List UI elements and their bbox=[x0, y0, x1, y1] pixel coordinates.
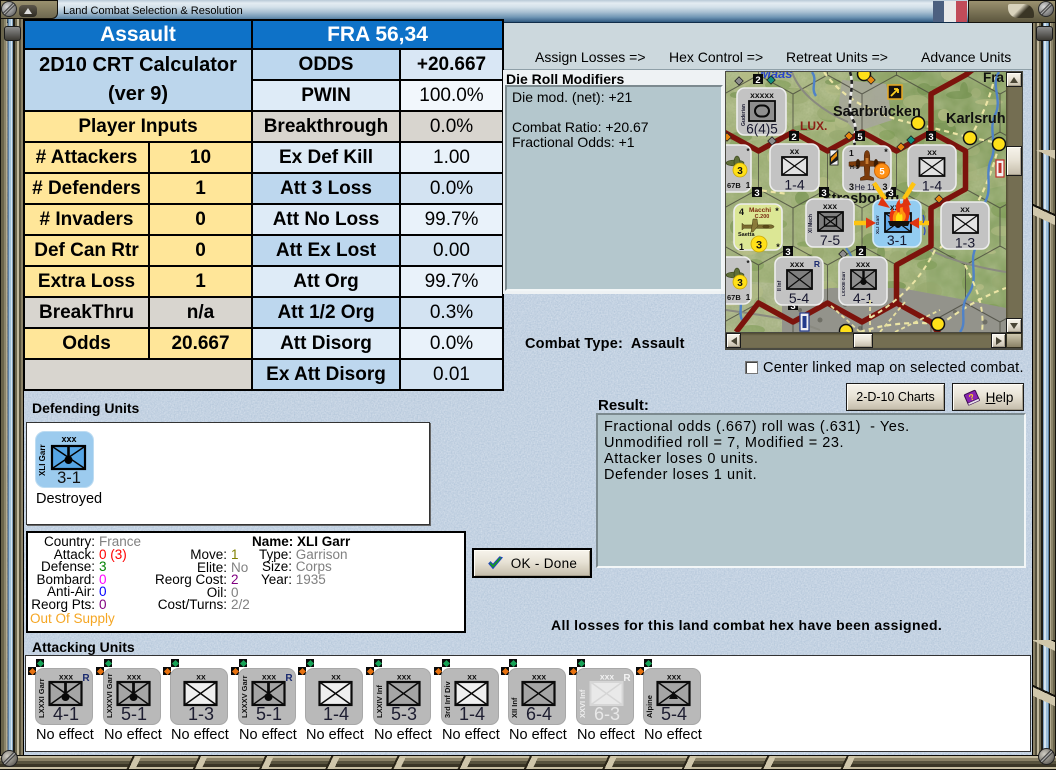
svg-text:67B: 67B bbox=[727, 293, 741, 302]
svg-text:Saetta: Saetta bbox=[738, 232, 755, 238]
svg-text:5-3: 5-3 bbox=[391, 704, 417, 724]
svg-text:2: 2 bbox=[791, 132, 796, 143]
svg-text:1-4: 1-4 bbox=[459, 704, 485, 724]
svg-text:xx: xx bbox=[927, 147, 937, 157]
svg-text:3: 3 bbox=[737, 278, 743, 289]
svg-text:6(4)5: 6(4)5 bbox=[746, 122, 778, 137]
svg-text:Fra: Fra bbox=[983, 72, 1005, 85]
svg-text:xxx: xxx bbox=[532, 672, 546, 682]
svg-text:Maas: Maas bbox=[760, 72, 793, 81]
svg-text:Karlsruhe: Karlsruhe bbox=[946, 111, 1006, 127]
svg-text:1-4: 1-4 bbox=[784, 177, 804, 193]
svg-text:67B: 67B bbox=[727, 181, 741, 190]
svg-text:XLI Garr: XLI Garr bbox=[38, 444, 47, 476]
svg-text:XLI Garr: XLI Garr bbox=[875, 215, 881, 234]
svg-text:2: 2 bbox=[858, 247, 863, 258]
svg-text:*: * bbox=[776, 242, 780, 252]
svg-text:5-4: 5-4 bbox=[661, 704, 687, 724]
svg-text:xx: xx bbox=[960, 204, 970, 214]
svg-text:1: 1 bbox=[739, 242, 744, 252]
svg-text:xxx: xxx bbox=[600, 672, 614, 682]
svg-text:5: 5 bbox=[879, 167, 885, 178]
svg-text:R: R bbox=[285, 673, 293, 684]
svg-text:3: 3 bbox=[754, 188, 759, 199]
svg-text:3: 3 bbox=[785, 247, 790, 258]
svg-text:R: R bbox=[814, 259, 820, 269]
svg-text:Alpine: Alpine bbox=[645, 695, 654, 718]
svg-text:*: * bbox=[775, 206, 779, 216]
svg-text:6-4: 6-4 bbox=[526, 704, 552, 724]
svg-text:LXXXIII Garr: LXXXIII Garr bbox=[841, 271, 846, 296]
svg-text:LXXXV Garr: LXXXV Garr bbox=[240, 675, 249, 718]
svg-text:xxx: xxx bbox=[856, 259, 870, 269]
svg-text:xx: xx bbox=[467, 672, 477, 682]
svg-text:LXXIV Inf: LXXIV Inf bbox=[375, 685, 384, 718]
svg-text:xx: xx bbox=[196, 672, 206, 682]
svg-text:5: 5 bbox=[857, 132, 863, 143]
svg-text:xxx: xxx bbox=[790, 259, 804, 269]
svg-text:3: 3 bbox=[849, 182, 854, 192]
svg-text:2: 2 bbox=[755, 75, 760, 86]
svg-text:xxxxx: xxxxx bbox=[750, 90, 774, 100]
svg-text:3-1: 3-1 bbox=[57, 469, 81, 487]
svg-text:xxx: xxx bbox=[61, 434, 76, 444]
svg-text:XXVI Inf: XXVI Inf bbox=[578, 689, 587, 718]
svg-text:1: 1 bbox=[849, 148, 854, 158]
svg-text:3-1: 3-1 bbox=[887, 232, 907, 248]
svg-text:1-3: 1-3 bbox=[188, 704, 214, 724]
svg-text:6-3: 6-3 bbox=[594, 704, 620, 724]
svg-text:3: 3 bbox=[756, 240, 762, 252]
svg-text:1: 1 bbox=[746, 180, 751, 190]
svg-text:5-1: 5-1 bbox=[256, 704, 282, 724]
svg-text:1-3: 1-3 bbox=[955, 235, 975, 251]
svg-text:3: 3 bbox=[882, 182, 887, 192]
svg-text:xxx: xxx bbox=[397, 672, 411, 682]
svg-text:H-3: H-3 bbox=[850, 165, 859, 171]
svg-text:xxx: xxx bbox=[823, 201, 837, 211]
svg-text:LXXXI Garr: LXXXI Garr bbox=[37, 678, 46, 718]
svg-text:xxx: xxx bbox=[59, 672, 73, 682]
svg-text:5-1: 5-1 bbox=[121, 704, 147, 724]
svg-text:7-5: 7-5 bbox=[820, 232, 840, 248]
svg-text:1: 1 bbox=[746, 292, 751, 302]
svg-text:1-4: 1-4 bbox=[922, 178, 942, 194]
svg-text:3: 3 bbox=[737, 166, 743, 177]
svg-text:xx: xx bbox=[790, 146, 800, 156]
svg-text:5-4: 5-4 bbox=[789, 290, 809, 306]
svg-text:xxx: xxx bbox=[667, 672, 681, 682]
svg-text:II Inf: II Inf bbox=[777, 280, 783, 291]
svg-text:LUX.: LUX. bbox=[800, 119, 827, 133]
svg-text:LXXXVI Garr: LXXXVI Garr bbox=[105, 673, 114, 718]
svg-text:3: 3 bbox=[928, 132, 933, 143]
svg-text:Saarbrücken: Saarbrücken bbox=[833, 104, 921, 120]
svg-text:R: R bbox=[623, 673, 631, 684]
svg-text:4-1: 4-1 bbox=[53, 704, 79, 724]
svg-text:XI Mech: XI Mech bbox=[808, 214, 814, 233]
svg-text:4: 4 bbox=[739, 207, 744, 217]
svg-text:XII Inf: XII Inf bbox=[510, 697, 519, 718]
svg-text:Macchi: Macchi bbox=[749, 207, 771, 214]
svg-text:R: R bbox=[82, 673, 90, 684]
svg-text:3rd Inf Div: 3rd Inf Div bbox=[443, 680, 452, 718]
svg-text:3: 3 bbox=[821, 188, 826, 199]
svg-text:*: * bbox=[884, 147, 888, 157]
svg-text:Guderian: Guderian bbox=[741, 104, 747, 126]
svg-text:xxx: xxx bbox=[127, 672, 141, 682]
svg-text:xxx: xxx bbox=[262, 672, 276, 682]
svg-text:1-4: 1-4 bbox=[323, 704, 349, 724]
svg-text:xx: xx bbox=[331, 672, 341, 682]
